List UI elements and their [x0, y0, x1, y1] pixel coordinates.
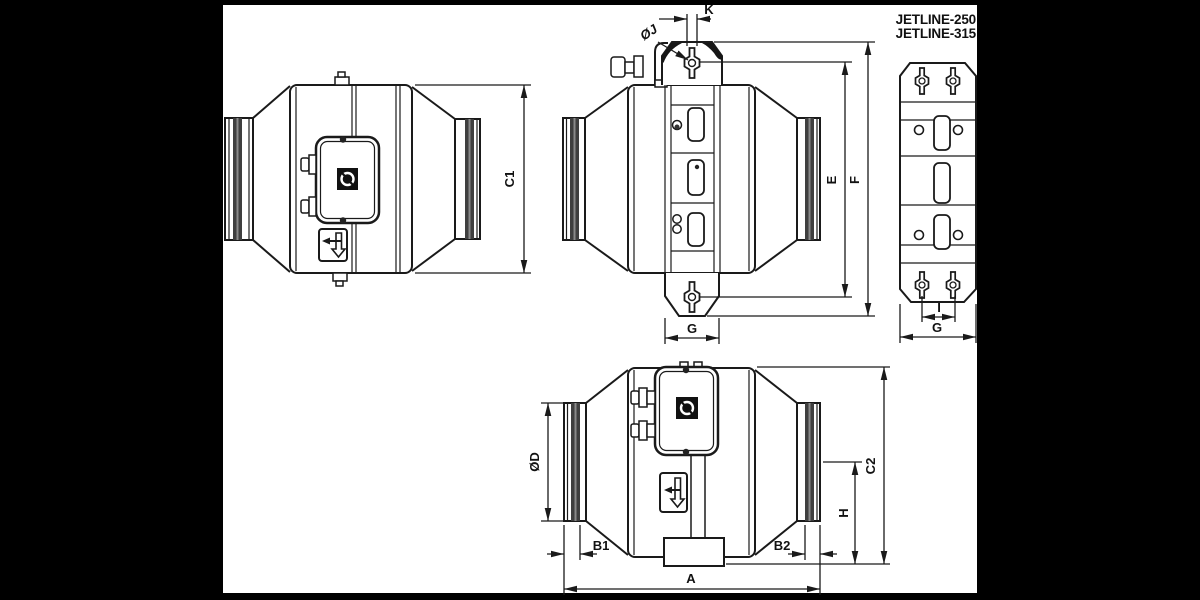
strap-slot	[934, 116, 950, 150]
product-name-line2: JETLINE-315	[896, 26, 977, 41]
box-screw-bottom	[340, 217, 346, 223]
dim-label-g-side: G	[687, 321, 697, 336]
band-slot	[688, 108, 704, 141]
brand-logo	[337, 168, 358, 190]
duct-spigot-left	[225, 118, 253, 240]
airflow-direction-label	[319, 229, 347, 261]
dim-label-od: ØD	[527, 452, 542, 472]
dim-label-i: I	[937, 300, 941, 315]
box-screw-top	[340, 136, 346, 142]
duct-spigot-left	[563, 118, 585, 240]
cable-gland-top	[631, 388, 655, 407]
dim-label-k: K	[704, 2, 714, 17]
dim-label-h: H	[836, 508, 851, 517]
mounting-bracket-top	[661, 42, 723, 85]
duct-spigot-left	[564, 403, 586, 521]
dim-label-a: A	[686, 571, 696, 586]
product-name-line1: JETLINE-250	[896, 12, 976, 27]
duct-spigot-right	[455, 119, 480, 239]
airflow-direction-label	[660, 473, 687, 512]
dim-label-e: E	[824, 175, 839, 184]
cable-gland-bottom	[631, 421, 655, 440]
cable-gland-top	[301, 155, 316, 174]
duct-spigot-right	[797, 118, 820, 240]
dim-label-b2: B2	[774, 538, 791, 553]
dim-label-f: F	[847, 176, 862, 184]
box-screw-bottom	[683, 449, 689, 455]
drawing-sheet: C1	[0, 0, 1200, 600]
strap-slot	[934, 163, 950, 203]
band-slot	[688, 213, 704, 246]
dim-label-c1: C1	[502, 171, 517, 188]
box-screw-top	[683, 367, 689, 373]
dim-label-c2: C2	[863, 458, 878, 475]
duct-spigot-right	[797, 403, 820, 521]
cable-gland-bottom	[301, 197, 316, 216]
dim-label-g-bracket: G	[932, 320, 942, 335]
strap-slot	[934, 215, 950, 249]
mounting-base-plate	[664, 538, 724, 566]
dim-label-b1: B1	[593, 538, 610, 553]
brand-logo	[676, 397, 698, 419]
